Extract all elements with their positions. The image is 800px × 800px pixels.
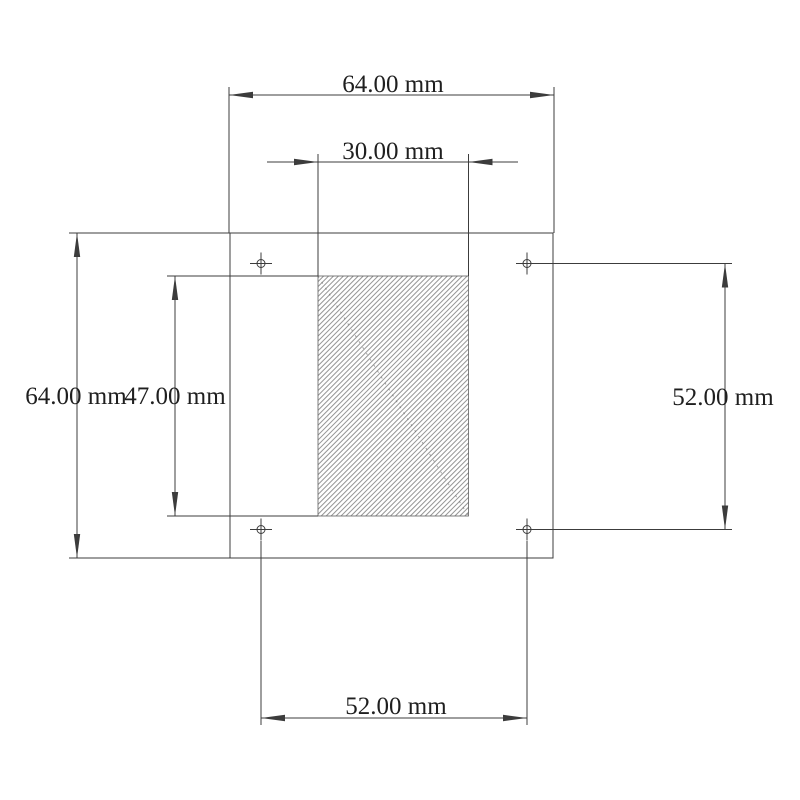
arrowhead	[722, 506, 728, 530]
arrowhead	[261, 715, 285, 721]
technical-drawing: 64.00 mm 30.00 mm 64.00 mm 47.00 mm 52.0…	[0, 0, 800, 800]
dimension-cutout-height-left: 47.00 mm	[124, 276, 318, 516]
arrowhead	[74, 534, 80, 558]
arrowhead	[172, 276, 178, 300]
dimension-hole-spacing-bottom: 52.00 mm	[261, 541, 527, 725]
dimension-hole-spacing-right: 52.00 mm	[527, 264, 774, 530]
arrowhead	[229, 92, 253, 98]
dimension-label: 52.00 mm	[345, 693, 447, 720]
hatched-cutout-group	[318, 276, 469, 516]
arrowhead	[172, 492, 178, 516]
drawing-canvas: 64.00 mm 30.00 mm 64.00 mm 47.00 mm 52.0…	[0, 0, 800, 800]
mounting-hole-top-left	[250, 253, 272, 275]
dimension-label: 64.00 mm	[25, 383, 127, 410]
arrowhead	[294, 159, 318, 165]
mounting-hole-bottom-left	[250, 519, 272, 541]
arrowhead	[469, 159, 493, 165]
dimension-label: 30.00 mm	[342, 138, 444, 165]
arrowhead	[530, 92, 554, 98]
dimension-cutout-width-top: 30.00 mm	[267, 138, 518, 276]
dimension-label: 64.00 mm	[342, 71, 444, 98]
arrowhead	[722, 264, 728, 288]
dimension-label: 52.00 mm	[672, 384, 774, 411]
arrowhead	[503, 715, 527, 721]
dimension-label: 47.00 mm	[124, 383, 226, 410]
arrowhead	[74, 233, 80, 257]
